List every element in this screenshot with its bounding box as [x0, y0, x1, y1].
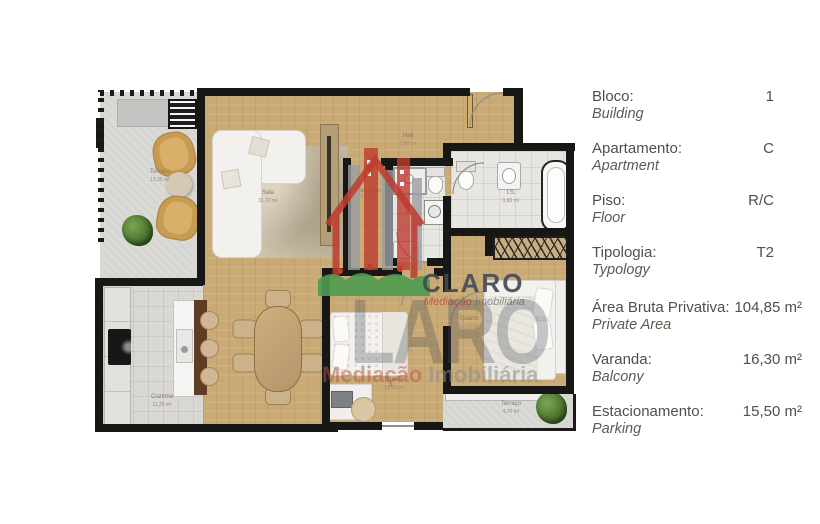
info-value: 104,85 m² [682, 299, 802, 316]
info-row-piso: Piso: Floor R/C [592, 192, 802, 232]
room-label-cozinha: Cozinha11,20 m² [140, 394, 184, 408]
room-label-quarto-bottom: Quarto12,05 m² [372, 377, 416, 391]
info-label-en: Apartment [592, 158, 802, 174]
info-value: R/C [654, 192, 802, 209]
info-label-en: Floor [592, 210, 802, 226]
room-label-terrace-br: Terraço4,70 m² [490, 401, 532, 415]
room-label-is1: I.S.3,10 m² [392, 203, 422, 217]
info-label-en: Balcony [592, 369, 802, 385]
info-row-tipologia: Tipologia: Typology T2 [592, 244, 802, 284]
room-label-quarto-right: Quarto13,70 m² [448, 316, 490, 330]
info-label-en: Typology [592, 262, 802, 278]
info-row-estacionamento: Estacionamento: Parking 15,50 m² [592, 403, 802, 443]
info-label-en: Building [592, 106, 802, 122]
room-label-sala: Sala31,70 m² [240, 190, 296, 204]
info-row-varanda: Varanda: Balcony 16,30 m² [592, 351, 802, 391]
room-label-circulacao: Circulação4,20 m² [346, 188, 392, 201]
info-value: 16,30 m² [682, 351, 802, 368]
info-row-apartamento: Apartamento: Apartment C [592, 140, 802, 180]
info-value: T2 [654, 244, 802, 261]
floor-plan-page: Terraço13,35 m² Sala31,70 m² Hall7,60 m²… [0, 0, 820, 524]
info-row-bloco: Bloco: Building 1 [592, 88, 802, 128]
info-row-area-bruta: Área Bruta Privativa: Private Area 104,8… [592, 299, 802, 339]
info-label-en: Parking [592, 421, 802, 437]
info-value: 1 [654, 88, 802, 105]
info-value: C [654, 140, 802, 157]
info-value: 15,50 m² [682, 403, 802, 420]
info-label-en: Private Area [592, 317, 802, 333]
room-label-is2: I.S.3,90 m² [495, 190, 527, 204]
room-label-hall: Hall7,60 m² [388, 133, 428, 147]
room-label-terrace-tl: Terraço13,35 m² [130, 169, 190, 183]
